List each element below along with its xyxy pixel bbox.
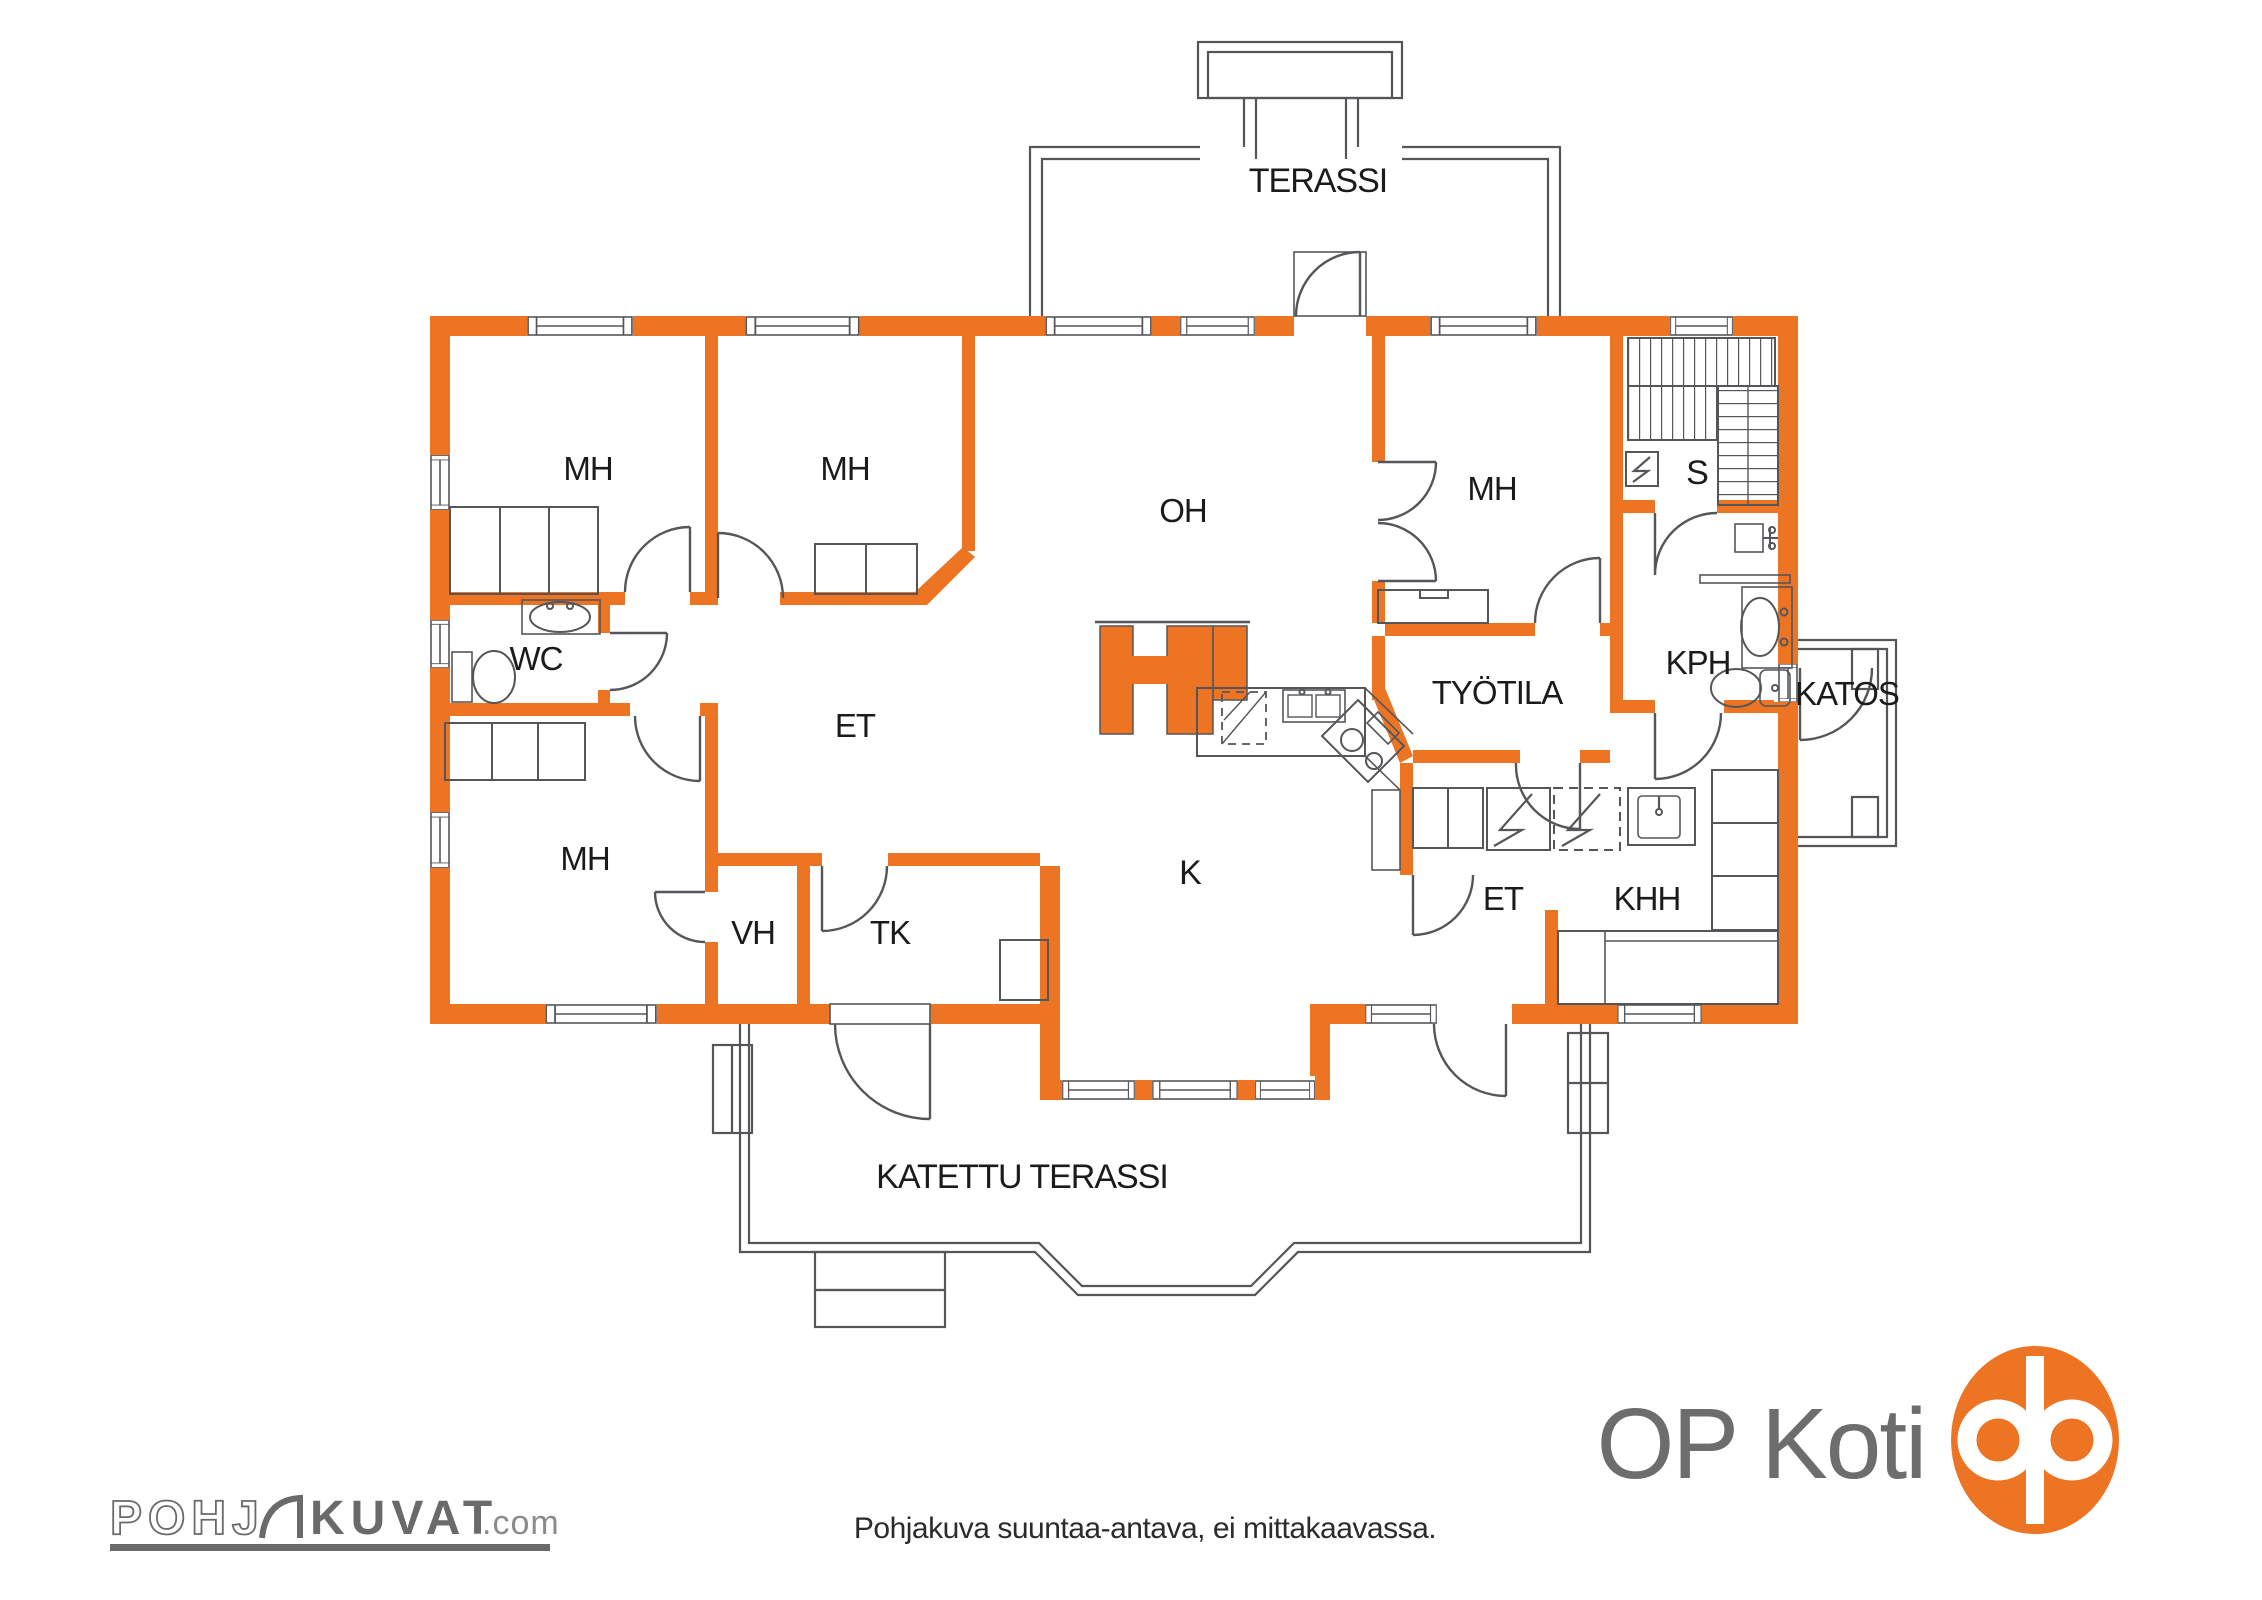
room-label-kitchen: K <box>1179 854 1202 892</box>
floor-plan: TERASSI MH MH OH MH S WC ET KPH KATOS TY… <box>0 0 2262 1600</box>
room-label-wc: WC <box>510 640 563 677</box>
pohjakuvat-logo: POHJ KUVAT .com <box>110 1492 560 1551</box>
floor-plan-page: TERASSI MH MH OH MH S WC ET KPH KATOS TY… <box>0 0 2262 1600</box>
room-label-tyotila: TYÖTILA <box>1432 674 1564 711</box>
khh-cabinets <box>1712 770 1778 930</box>
room-label-terassi: TERASSI <box>1249 162 1387 200</box>
khh-sink-icon <box>1628 788 1695 845</box>
room-label-et-utility: ET <box>1483 880 1524 917</box>
room-label-kph: KPH <box>1666 644 1731 681</box>
kph-shower-icon <box>1735 524 1778 552</box>
disclaimer-text: Pohjakuva suuntaa-antava, ei mittakaavas… <box>854 1512 1436 1545</box>
op-koti-text: OP Koti <box>1597 1388 1926 1500</box>
stairs <box>1718 386 1778 505</box>
room-label-khh: KHH <box>1614 880 1681 917</box>
room-label-katettu-terassi: KATETTU TERASSI <box>876 1158 1168 1196</box>
wardrobe-mh-top-left <box>450 507 598 594</box>
op-logo-icon <box>1951 1346 2119 1534</box>
room-label-mh-top-left: MH <box>563 450 612 487</box>
wc-toilet-icon <box>452 651 515 703</box>
katos-outline <box>1798 640 1896 846</box>
op-koti-logo: OP Koti <box>1597 1346 2119 1534</box>
wardrobe-mh-top-mid <box>815 544 917 594</box>
room-label-mh-top-right: MH <box>1467 470 1516 507</box>
room-label-mh-top-mid: MH <box>820 450 869 487</box>
room-label-mh-bottom-left: MH <box>560 840 609 877</box>
pohjakuvat-underline <box>110 1544 550 1551</box>
sauna-heater-icon <box>1626 452 1658 486</box>
pohjakuvat-main: KUVAT <box>310 1492 498 1545</box>
kitchen-sink-icon <box>1283 690 1345 723</box>
dryer-icon <box>1554 788 1620 850</box>
pohjakuvat-pre: POHJ <box>110 1492 265 1545</box>
pohjakuvat-suffix: .com <box>482 1504 560 1542</box>
room-label-et-hall: ET <box>835 707 876 744</box>
room-label-vh: VH <box>731 914 775 951</box>
et-cabinets <box>1413 788 1483 848</box>
room-label-oh: OH <box>1159 492 1207 529</box>
washer-icon <box>1487 788 1550 850</box>
khh-bench <box>1558 931 1778 1004</box>
kph-shelf <box>1700 575 1790 583</box>
door-arc-icon <box>262 1498 300 1538</box>
room-label-sauna: S <box>1686 454 1708 492</box>
wc-sink-icon <box>522 600 600 634</box>
wardrobe-mh-bottom-left <box>445 723 585 780</box>
dresser-mh-right <box>1378 590 1488 623</box>
room-label-tk: TK <box>870 914 911 951</box>
room-label-katos: KATOS <box>1795 675 1899 712</box>
